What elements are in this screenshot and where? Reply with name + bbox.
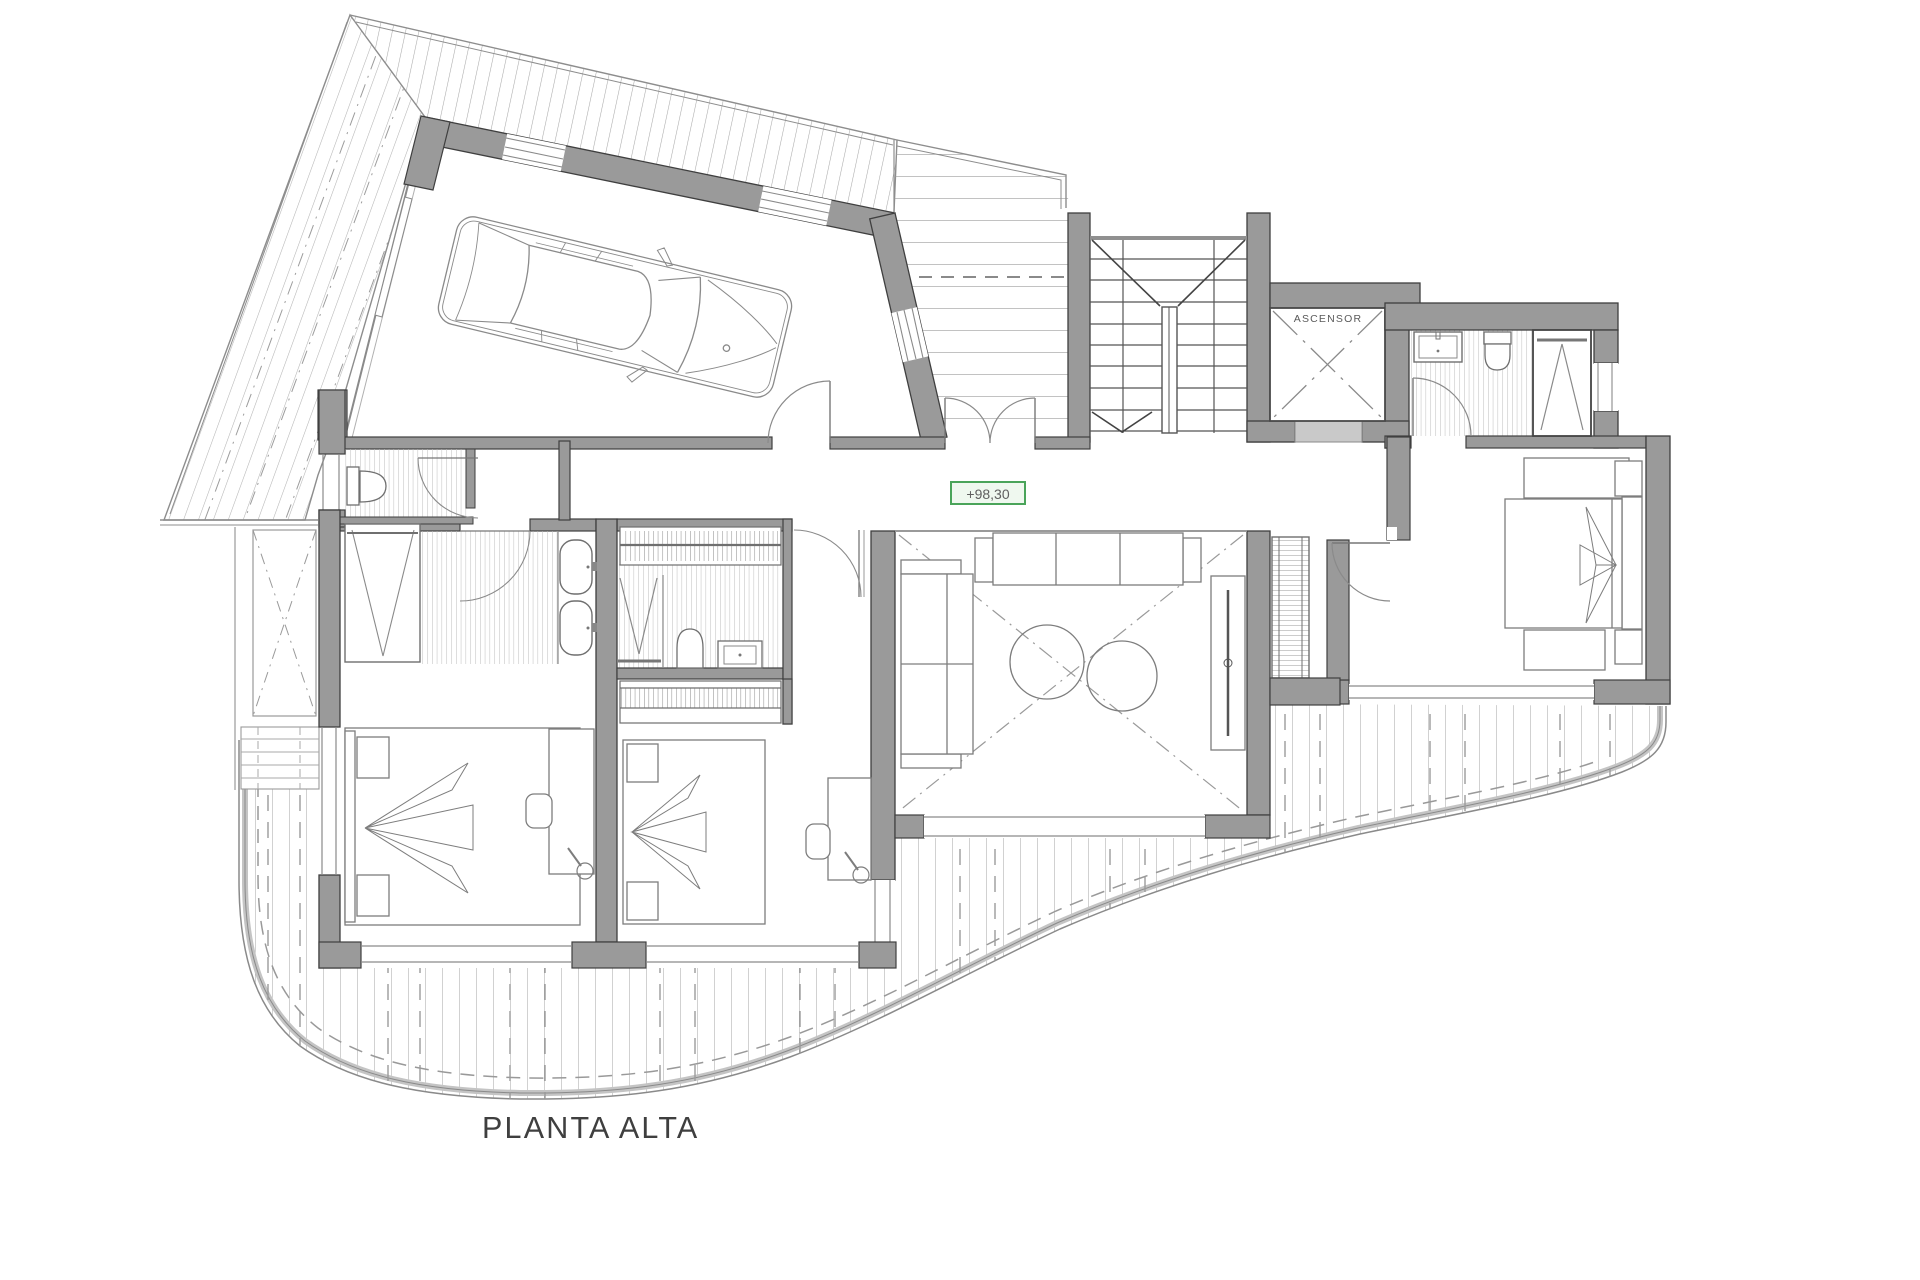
svg-text:+98,30: +98,30 bbox=[966, 486, 1009, 502]
svg-text:PLANTA ALTA: PLANTA ALTA bbox=[482, 1111, 699, 1145]
svg-text:ASCENSOR: ASCENSOR bbox=[1294, 313, 1363, 325]
